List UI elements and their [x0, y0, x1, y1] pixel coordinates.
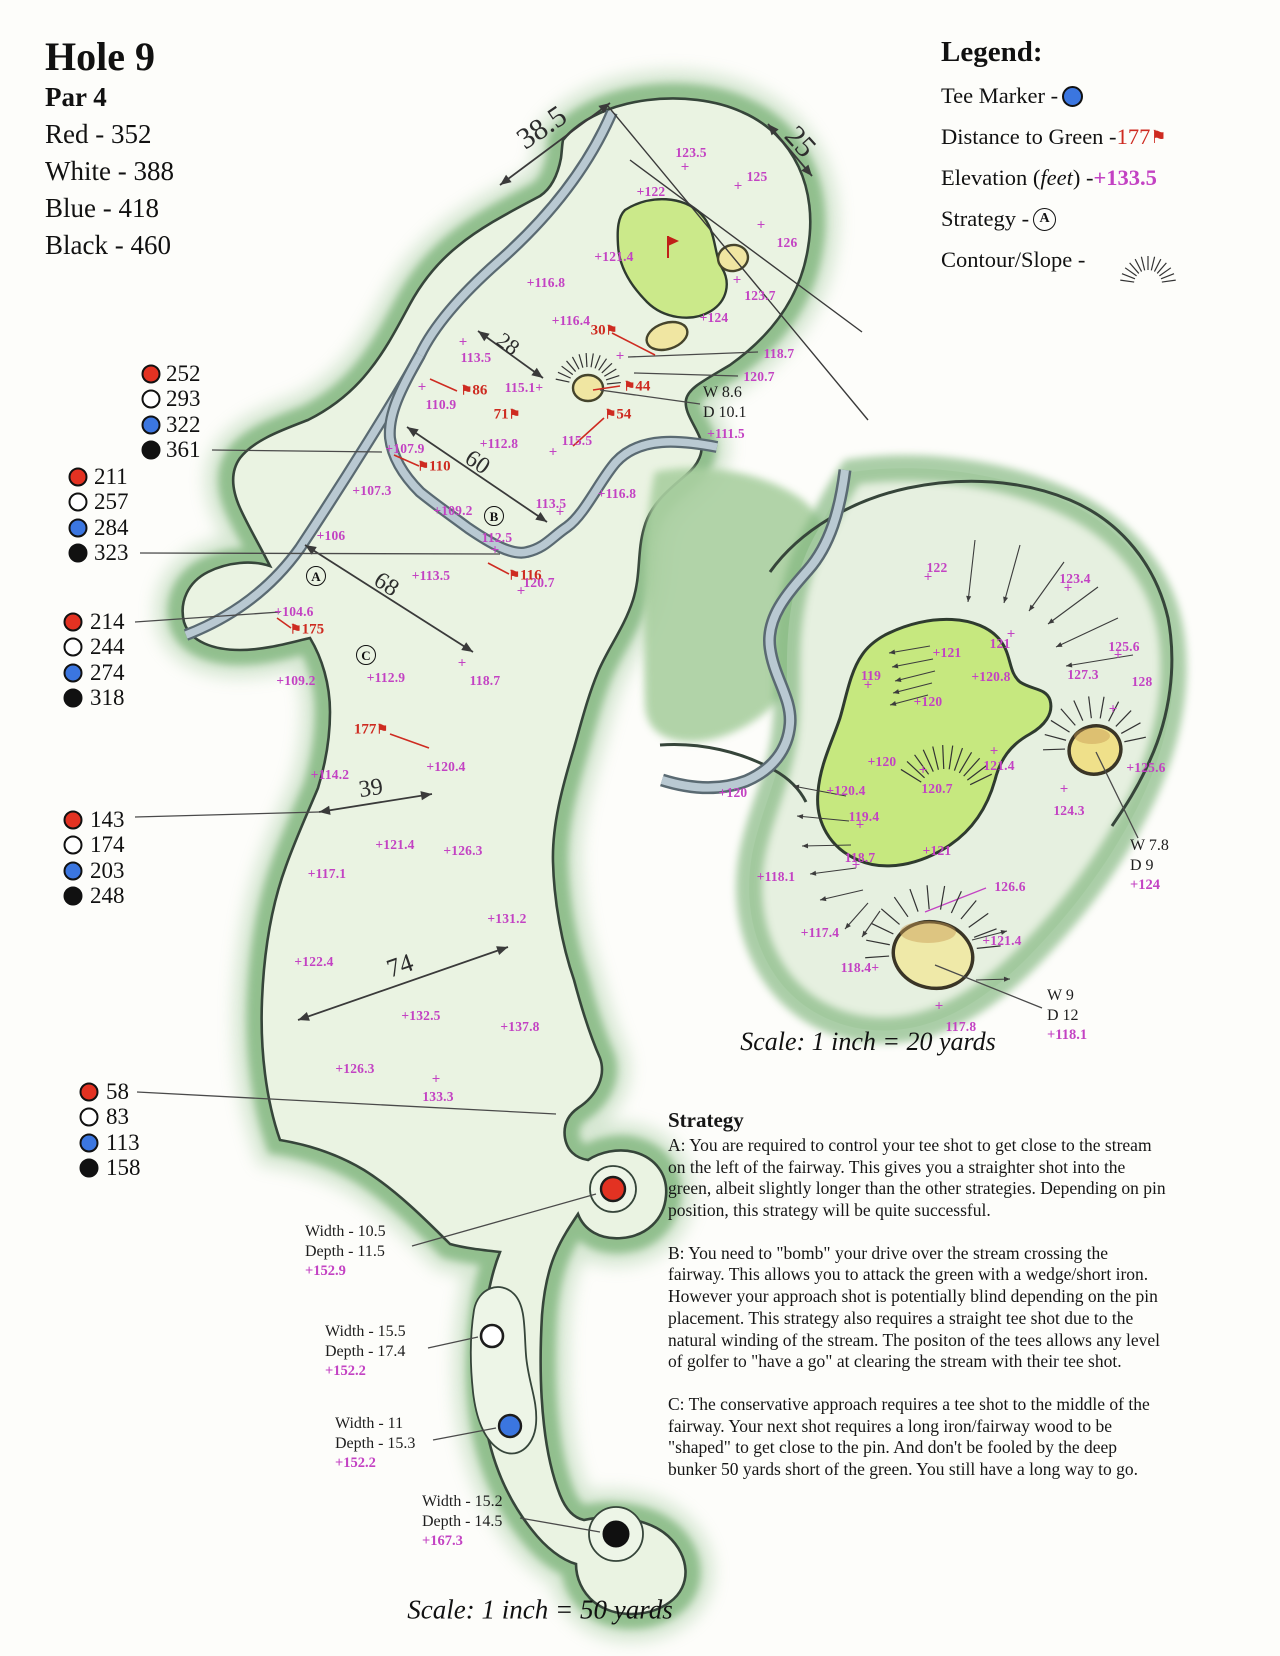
- distance-to-green-label: ⚑44: [624, 379, 651, 396]
- note-line: W 7.8: [1130, 836, 1169, 856]
- elevation-label: 126.6: [994, 879, 1025, 895]
- elevation-plus-mark: +: [733, 273, 742, 290]
- elevation-label: 127.3: [1067, 667, 1098, 683]
- elevation-label: 115.1+: [505, 380, 544, 396]
- legend-elevation-value: +133.5: [1093, 165, 1156, 191]
- distance-to-green-label: ⚑110: [417, 459, 450, 476]
- elevation-plus-mark: +: [935, 999, 944, 1016]
- note-line: Width - 15.5: [325, 1322, 406, 1342]
- note-line: Depth - 17.4: [325, 1342, 406, 1362]
- elevation-label: +107.3: [352, 483, 391, 499]
- tee-color-dot-red: [64, 811, 83, 830]
- elevation-plus-mark: +: [864, 678, 873, 695]
- elevation-plus-mark: +: [556, 505, 565, 522]
- note-line: W 8.6: [703, 383, 747, 403]
- legend-tee-marker-row: Tee Marker -: [941, 81, 1166, 111]
- hole-par: Par 4: [45, 82, 174, 113]
- dimension-label: 28: [491, 327, 524, 361]
- tee-yardage-value: 322: [166, 412, 201, 438]
- elevation-label: +117.1: [308, 866, 347, 882]
- note-elevation: +124: [1130, 876, 1169, 894]
- measurement-note: Width - 15.2Depth - 14.5+167.3: [422, 1492, 503, 1550]
- strategy-title: Strategy: [668, 1108, 1168, 1133]
- elevation-label: +118.1: [757, 869, 796, 885]
- legend-elevation-row: Elevation (feet) - +133.5: [941, 163, 1166, 193]
- strategy-point-b: B: [484, 506, 504, 526]
- elevation-label: +114.2: [311, 767, 350, 783]
- tee-color-dot-red: [142, 365, 161, 384]
- elevation-plus-mark: +: [1109, 702, 1118, 719]
- tee-yardage-value: 143: [90, 807, 125, 833]
- elevation-label: 110.9: [426, 397, 457, 413]
- elevation-label: +104.6: [274, 604, 313, 620]
- tee-color-dot-blue: [64, 663, 83, 682]
- strategy-point-c: C: [356, 645, 376, 665]
- elevation-plus-mark: +: [919, 763, 928, 780]
- elevation-label: 120.7: [921, 781, 952, 797]
- tee-color-dot-white: [80, 1108, 99, 1127]
- inset-scale-text: Scale: 1 inch = 20 yards: [740, 1027, 996, 1057]
- elevation-label: +116.8: [527, 275, 566, 291]
- distance-to-green-label: 177⚑: [354, 722, 388, 739]
- tee-yardage-value: 214: [90, 609, 125, 635]
- measurement-note: W 7.8D 9+124: [1130, 836, 1169, 894]
- legend: Legend: Tee Marker - Distance to Green -…: [941, 36, 1166, 275]
- tee-color-dot-red: [64, 613, 83, 632]
- elevation-label: +111.5: [707, 426, 745, 442]
- strategy-paragraph-b: B: You need to "bomb" your drive over th…: [668, 1243, 1168, 1373]
- elevation-label: +132.5: [401, 1008, 440, 1024]
- elevation-plus-mark: +: [517, 584, 526, 601]
- elevation-label: +112.8: [480, 436, 519, 452]
- distance-to-green-label: 71⚑: [494, 407, 521, 424]
- strategy-point-a: A: [306, 566, 326, 586]
- elevation-plus-mark: +: [924, 570, 933, 587]
- tee-yardage-value: 318: [90, 685, 125, 711]
- tee-yardage-value: 257: [94, 489, 129, 515]
- distance-to-green-label: ⚑116: [508, 568, 541, 585]
- strategy-section: Strategy A: You are required to control …: [668, 1108, 1168, 1502]
- elevation-label: +112.9: [367, 670, 406, 686]
- elevation-label: 124.3: [1053, 803, 1084, 819]
- measurement-note: W 8.6D 10.1: [703, 383, 747, 423]
- tee-marker-icon: [1062, 86, 1083, 107]
- hole-title: Hole 9: [45, 36, 174, 78]
- tee-color-dot-blue: [80, 1133, 99, 1152]
- note-line: Depth - 15.3: [335, 1434, 415, 1454]
- elevation-label: +107.9: [385, 441, 424, 457]
- elevation-label: +109.2: [433, 503, 472, 519]
- elevation-label: +116.4: [552, 313, 591, 329]
- distance-to-green-label: ⚑54: [605, 407, 632, 424]
- elevation-label: +120: [719, 785, 748, 801]
- elevation-label: +122: [637, 184, 666, 200]
- elevation-plus-mark: +: [459, 335, 468, 352]
- elevation-label: +121: [933, 645, 962, 661]
- elevation-label: 113.5: [461, 350, 492, 366]
- note-elevation: +167.3: [422, 1532, 503, 1550]
- tee-color-dot-blue: [64, 861, 83, 880]
- legend-contour-row: Contour/Slope -: [941, 245, 1166, 275]
- tee-yardage-value: 244: [90, 634, 125, 660]
- elevation-label: 128: [1132, 674, 1153, 690]
- flag-icon: ⚑: [509, 407, 521, 422]
- note-elevation: +118.1: [1047, 1026, 1087, 1044]
- tee-yardage-value: 248: [90, 883, 125, 909]
- tee-color-dot-red: [69, 468, 88, 487]
- note-line: W 9: [1047, 986, 1087, 1006]
- measurement-note: Width - 10.5Depth - 11.5+152.9: [305, 1222, 386, 1280]
- legend-contour-label: Contour/Slope -: [941, 247, 1085, 273]
- tee-yardage-value: 211: [94, 464, 128, 490]
- note-line: Width - 15.2: [422, 1492, 503, 1512]
- tee-yardage-value: 203: [90, 858, 125, 884]
- strategy-circle-icon: A: [1033, 208, 1056, 231]
- tee-yardage-value: 361: [166, 437, 201, 463]
- elevation-label: +120: [868, 754, 897, 770]
- elevation-label: +113.5: [412, 568, 451, 584]
- legend-distance-row: Distance to Green - 177 ⚑: [941, 122, 1166, 152]
- flag-icon: ⚑: [508, 568, 520, 583]
- elevation-plus-mark: +: [1060, 782, 1069, 799]
- tee-distance-red: Red - 352: [45, 119, 174, 150]
- measurement-note: Width - 15.5Depth - 17.4+152.2: [325, 1322, 406, 1380]
- measurement-note: W 9D 12+118.1: [1047, 986, 1087, 1044]
- legend-elevation-label-post: ) -: [1073, 165, 1094, 191]
- elevation-plus-mark: +: [1007, 627, 1016, 644]
- elevation-plus-mark: +: [491, 543, 500, 560]
- legend-elevation-label: Elevation (: [941, 165, 1040, 191]
- tee-yardage-value: 174: [90, 832, 125, 858]
- elevation-label: +120: [914, 694, 943, 710]
- distance-to-green-label: ⚑86: [461, 383, 488, 400]
- note-elevation: +152.2: [335, 1454, 415, 1472]
- legend-title: Legend:: [941, 36, 1166, 69]
- elevation-plus-mark: +: [734, 179, 743, 196]
- tee-color-dot-white: [64, 836, 83, 855]
- elevation-label: +109.2: [276, 673, 315, 689]
- note-elevation: +152.2: [325, 1362, 406, 1380]
- note-line: D 9: [1130, 856, 1169, 876]
- tee-yardage-value: 158: [106, 1155, 141, 1181]
- note-elevation: +152.9: [305, 1262, 386, 1280]
- tee-color-dot-black: [80, 1159, 99, 1178]
- tee-color-dot-white: [69, 493, 88, 512]
- elevation-label: +122.4: [294, 954, 333, 970]
- elevation-label: 115.5: [562, 433, 593, 449]
- tee-yardage-value: 83: [106, 1104, 129, 1130]
- elevation-label: +117.4: [801, 925, 840, 941]
- elevation-plus-mark: +: [1114, 648, 1123, 665]
- elevation-label: +131.2: [487, 911, 526, 927]
- tee-color-dot-white: [64, 638, 83, 657]
- tee-yardage-value: 323: [94, 540, 129, 566]
- elevation-label: +106: [317, 528, 346, 544]
- tee-color-dot-white: [142, 390, 161, 409]
- elevation-label: +126.3: [443, 843, 482, 859]
- elevation-label: +124: [700, 310, 729, 326]
- elevation-label: 125: [747, 169, 768, 185]
- dimension-label: 74: [383, 948, 417, 985]
- elevation-label: +121.4: [375, 837, 414, 853]
- tee-color-dot-red: [80, 1083, 99, 1102]
- tee-color-dot-black: [142, 441, 161, 460]
- tee-distance-white: White - 388: [45, 156, 174, 187]
- legend-tee-marker-label: Tee Marker -: [941, 83, 1058, 109]
- elevation-label: +121: [923, 843, 952, 859]
- flag-icon: ⚑: [417, 459, 429, 474]
- elevation-label: 121.4: [983, 758, 1014, 774]
- elevation-label: 120.7: [743, 369, 774, 385]
- strategy-paragraph-c: C: The conservative approach requires a …: [668, 1394, 1168, 1481]
- legend-strategy-label: Strategy -: [941, 206, 1029, 232]
- note-line: Depth - 14.5: [422, 1512, 503, 1532]
- hole-header: Hole 9 Par 4 Red - 352 White - 388 Blue …: [45, 36, 174, 261]
- tee-color-dot-black: [64, 887, 83, 906]
- flag-icon: ⚑: [290, 622, 302, 637]
- tee-distance-black: Black - 460: [45, 230, 174, 261]
- elevation-plus-mark: +: [1064, 581, 1073, 598]
- elevation-label: +120.4: [426, 759, 465, 775]
- elevation-label: +125.6: [1126, 760, 1165, 776]
- legend-strategy-row: Strategy - A: [941, 204, 1166, 234]
- elevation-plus-mark: +: [458, 656, 467, 673]
- distance-to-green-label: 30⚑: [591, 323, 618, 340]
- elevation-label: 133.3: [422, 1089, 453, 1105]
- tee-yardage-value: 58: [106, 1079, 129, 1105]
- tee-color-dot-black: [69, 544, 88, 563]
- elevation-plus-mark: +: [852, 858, 861, 875]
- dimension-label: 25: [777, 119, 822, 164]
- tee-yardage-value: 274: [90, 660, 125, 686]
- tee-yardage-value: 293: [166, 386, 201, 412]
- flag-icon: ⚑: [461, 383, 473, 398]
- elevation-plus-mark: +: [432, 1072, 441, 1089]
- elevation-label: 126: [777, 235, 798, 251]
- note-line: Width - 11: [335, 1414, 415, 1434]
- dimension-label: 38.5: [511, 99, 574, 157]
- tee-distance-blue: Blue - 418: [45, 193, 174, 224]
- elevation-label: +120.4: [826, 783, 865, 799]
- elevation-label: +121.4: [982, 933, 1021, 949]
- note-line: Depth - 11.5: [305, 1242, 386, 1262]
- tee-yardage-value: 284: [94, 515, 129, 541]
- tee-yardage-value: 113: [106, 1130, 140, 1156]
- elevation-plus-mark: +: [757, 218, 766, 235]
- elevation-label: 118.7: [470, 673, 501, 689]
- note-line: D 12: [1047, 1006, 1087, 1026]
- legend-distance-value: 177: [1117, 124, 1151, 150]
- tee-color-dot-blue: [142, 415, 161, 434]
- note-line: Width - 10.5: [305, 1222, 386, 1242]
- strategy-paragraph-a: A: You are required to control your tee …: [668, 1135, 1168, 1222]
- elevation-label: +121.4: [594, 249, 633, 265]
- legend-distance-label: Distance to Green -: [941, 124, 1117, 150]
- tee-color-dot-blue: [69, 518, 88, 537]
- elevation-plus-mark: +: [418, 380, 427, 397]
- main-scale-text: Scale: 1 inch = 50 yards: [407, 1595, 672, 1626]
- elevation-plus-mark: +: [681, 160, 690, 177]
- legend-elevation-feet: feet: [1040, 165, 1072, 191]
- elevation-label: +126.3: [335, 1061, 374, 1077]
- distance-to-green-label: ⚑175: [290, 622, 324, 639]
- flag-icon: ⚑: [624, 379, 636, 394]
- elevation-label: +137.8: [500, 1019, 539, 1035]
- flag-icon: ⚑: [1150, 127, 1166, 148]
- flag-icon: ⚑: [606, 323, 618, 338]
- elevation-label: +116.8: [598, 486, 637, 502]
- tee-color-dot-black: [64, 689, 83, 708]
- note-line: D 10.1: [703, 403, 747, 423]
- elevation-label: 123.7: [744, 288, 775, 304]
- measurement-note: Width - 11Depth - 15.3+152.2: [335, 1414, 415, 1472]
- contour-slope-icon: [1085, 245, 1155, 275]
- yardage-book-page: 123.5125+122126+121.4123.7+124+116.8+116…: [0, 0, 1280, 1656]
- elevation-label: 118.4+: [841, 960, 880, 976]
- elevation-plus-mark: +: [549, 445, 558, 462]
- elevation-plus-mark: +: [616, 349, 625, 366]
- elevation-plus-mark: +: [990, 744, 999, 761]
- dimension-label: 68: [369, 567, 404, 603]
- tee-yardage-value: 252: [166, 361, 201, 387]
- elevation-label: +120.8: [971, 669, 1010, 685]
- flag-icon: ⚑: [605, 407, 617, 422]
- flag-icon: ⚑: [376, 722, 388, 737]
- elevation-plus-mark: +: [856, 818, 865, 835]
- elevation-label: 118.7: [764, 346, 795, 362]
- dimension-label: 39: [357, 774, 385, 804]
